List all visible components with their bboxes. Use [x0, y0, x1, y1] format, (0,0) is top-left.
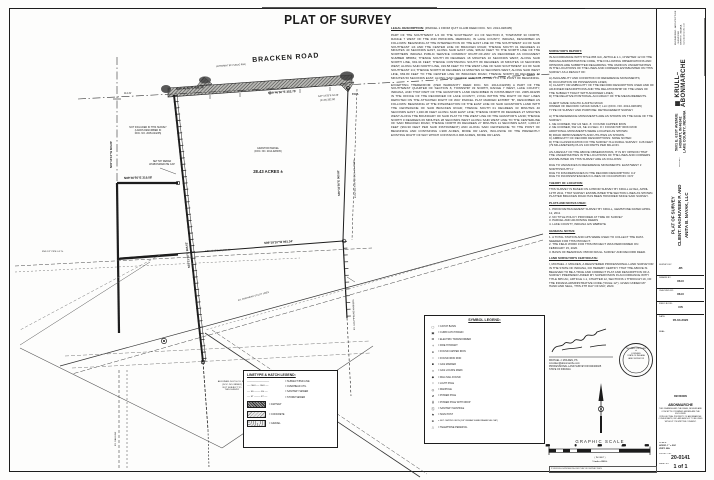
legend-label: = POWER POLE [438, 394, 456, 397]
legend-label: = CATCH BASIN [438, 325, 456, 328]
field-field-book: FIELD BOOK: CB [657, 302, 704, 315]
found-iron-rod-icon: ○ [428, 356, 438, 360]
report-client-info: CLIENT NAME: RAGHU & ANITA NAYAK OWNER O… [549, 102, 654, 113]
dim-quarter: 114.31' [124, 92, 132, 95]
legend-label: = TELEPHONE PEDESTAL [438, 426, 467, 429]
surveyor-seal-text: MICHAEL J. MOLDEN ★ LICENSED STATE OF IN… [621, 348, 651, 360]
legend-label: = CURB CATCH BASIN [438, 331, 463, 334]
drawing-info-fields: SURVEY BY: JB DRAWN BY: RLN CHECKED BY: … [657, 263, 704, 331]
project-label: PROJECT: [679, 157, 682, 167]
field-value: RLN [659, 292, 702, 296]
manhole-icon: ◎ [428, 388, 438, 392]
plat-sheet: PLAT OF SURVEY [0, 0, 714, 480]
report-opinion: AS A RESULT OF THE ABOVE OBSERVATIONS, I… [549, 151, 654, 162]
scale-ratio-label: 1 inch = 200 ft. [570, 461, 630, 464]
theory-heading: THEORY OF LOCATION: [549, 182, 654, 186]
label-east-stub: EX. GAS PIPELINE MARKERS [352, 299, 356, 330]
legend-label: = ASPHALT [269, 403, 282, 406]
legend-label: = GAS LOCATE MARK [438, 369, 463, 372]
gas-locate-mark-icon: × [428, 369, 438, 373]
sanitary-sewer-line-sample: ── SS ──── SS ── [247, 391, 285, 394]
linetype-legend: LINETYPE & HATCH LEGEND: ─────────────= … [243, 370, 338, 448]
field-drawn-by: DRAWN BY: RLN [657, 276, 704, 289]
legend-row: = CONCRETE [247, 410, 334, 420]
legal-paragraph: PART OF THE SOUTHWEST 1/4 OF THE SOUTHEA… [391, 34, 540, 81]
scale-vertical: VERT: N/A [657, 448, 704, 451]
legend-label: = SANITARY SEWER [285, 390, 308, 393]
legal-subheading: (PARCEL 1 FROM QUIT CLAIM DEED DOC. NO. … [425, 27, 512, 30]
plats-list: 1. PRIOR RETRACEMENT SURVEY BY KRULL, GE… [549, 208, 654, 226]
legend-label: = SIGN POST [438, 413, 453, 416]
storm-sewer-line-sample: ── ST ──── ST ── [247, 396, 285, 399]
light-pole-icon: ☼ [428, 381, 438, 385]
curb-catch-basin-icon: ▣ [428, 331, 438, 335]
notes-list: 1. A TOTAL STATION AND GPS WERE USED TO … [549, 236, 654, 254]
catch-basin-icon: ▢ [428, 325, 438, 329]
sheet-number-block: SHEET NO. 1 of 1 [657, 463, 704, 471]
gravel-hatch-swatch [247, 420, 266, 427]
telephone-pedestal-icon: △ [428, 425, 438, 429]
electric-transformer-icon: ⊠ [428, 337, 438, 341]
note-set-rebar: SET 5/8" REBAR W/ABONMARCHE CAP [144, 160, 180, 166]
certificate-text: I, MICHAEL J. MOLDEN, A REGISTERED PROFE… [549, 263, 654, 289]
graphic-scale-title: GRAPHIC SCALE [568, 439, 632, 444]
project-address-block: 5601 E. 61ST AVENUE HOBART, IN 46342 LAK… [657, 107, 704, 158]
symbol-legend-title: SYMBOL LEGEND: [428, 318, 541, 322]
mag-nail-icon: ◆ [428, 375, 438, 379]
revisions-label: REVISIONS [657, 392, 704, 401]
field-value: CB [659, 305, 702, 309]
dim-section-line: N00°13'10"W 663.80' [109, 141, 113, 168]
legend-label: = MANHOLE [438, 388, 452, 391]
seal-area: SEAL: [657, 330, 704, 393]
plats-heading: PLATS AND NOTES USED: [549, 202, 654, 206]
sheet-title-client: PLAT OF SURVEY CLIENT: RAGHUVEER P. AND … [671, 184, 691, 245]
dim-west-stub: N89°46'50"E 319.58' [124, 177, 152, 181]
label-existing-rw: EXISTING R/W PER DOC. NO. 885861 [354, 159, 357, 198]
gas-marker-icon: ■ [428, 362, 438, 366]
firm-disclaimer-block: ABONMARCHE THIS DRAWING AND THE IDEAS, D… [657, 401, 704, 443]
fire-hydrant-icon: + [428, 344, 438, 348]
note-excluded-lands: NOT INCLUDED IN THIS SURVEY (LANDS DESCR… [126, 126, 170, 135]
field-checked-by: CHECKED BY: RLN [657, 289, 704, 302]
concrete-hatch-swatch [247, 411, 266, 418]
label-gas-line: EX. GAS LINE [114, 431, 117, 446]
legend-label: = FOUND IRON ROD [438, 357, 461, 360]
firm-block: ▦ KRULL–ABONMARCHE ENGINEERING · ARCHITE… [657, 9, 704, 108]
surveyor-name-block: MICHAEL J. MOLDEN, PS mmolden@abonmarche… [549, 359, 617, 371]
surveyors-report: SURVEYOR'S REPORT: IN ACCORDANCE WITH TI… [549, 50, 654, 342]
report-uncertainties: DUE TO VARIANCES IN REFERENCE MONUMENTS:… [549, 164, 654, 179]
note-found-pipe: FND 1/2" PIPE 0.3' N. [42, 251, 84, 254]
notes-heading: GENERAL NOTES: [549, 230, 654, 234]
boundary-line-sample: ───────────── [247, 380, 285, 383]
legend-label: = GAS MARKER [438, 363, 456, 366]
legend-label: = LIGHT POLE [438, 382, 454, 385]
legend-label: = SANITARY MANHOLE [438, 407, 464, 410]
overhead-util-line-sample: ── OHU ── OHU ── [247, 385, 285, 388]
legend-label: = CONCRETE [269, 413, 284, 416]
legend-label: = FOUND CAPPED IRON [438, 350, 466, 353]
field-value: RLN [659, 279, 702, 283]
report-intro: IN ACCORDANCE WITH TITLE 865 IAC, ARTICL… [549, 56, 654, 74]
set-capped-iron-icon: ⊕ [428, 419, 438, 423]
legal-excepting-paragraph: EXCEPTING THEREFROM: (PER WARRANTY DEED … [391, 84, 540, 138]
project-address: 5601 E. 61ST AVENUE HOBART, IN 46342 LAK… [675, 111, 687, 154]
drawing-file-path: P:\2020\20-0141\DWG\20-0141 PLAT OF SURV… [549, 466, 657, 473]
legend-label: = SUBJECT BND LINE [285, 380, 310, 383]
scale-tick: 800 [645, 445, 649, 447]
field-value: 05.04.2020 [659, 318, 702, 322]
report-causes: A) AVAILABILITY AND CONDITION OF REFEREN… [549, 77, 654, 99]
monument-symbols [160, 87, 355, 364]
scale-tick: 0 [575, 445, 577, 447]
scale-tick: 400 [622, 445, 626, 447]
firm-name: ▦ KRULL–ABONMARCHE [674, 47, 687, 107]
legal-heading: LEGAL DESCRIPTION: [391, 27, 424, 30]
theory-text: THIS SURVEY IS BASED ON A PRIOR SURVEY B… [549, 188, 654, 199]
firm-disclaimer: THIS DRAWING AND THE IDEAS, DESIGNS AND … [657, 408, 704, 423]
report-heading: SURVEYOR'S REPORT: [549, 50, 654, 54]
legend-row: = GRAVEL [247, 419, 334, 429]
linetype-legend-title: LINETYPE & HATCH LEGEND: [247, 373, 334, 377]
power-pole-icon: ø [428, 394, 438, 398]
legend-label: = MAG NAIL FOUND [438, 376, 461, 379]
field-date: DATE: 05.04.2020 [657, 315, 704, 327]
scale-tick: 200 [546, 445, 550, 447]
legend-label: = SET CAPPED IRON (5/8" REBAR W/ABONMARC… [438, 420, 498, 423]
scale-units-label: ( IN FEET ) [570, 457, 630, 460]
legend-row: △= TELEPHONE PEDESTAL [428, 424, 541, 430]
legal-description: LEGAL DESCRIPTION: (PARCEL 1 FROM QUIT C… [391, 27, 540, 273]
graphic-scale-bar: 200 0 200 400 800 [546, 445, 650, 455]
point-of-beginning-label: P.O.B. [352, 93, 359, 96]
sign-post-icon: ⚑ [428, 413, 438, 417]
acreage-label: 28.43 ACRES ± [240, 169, 296, 174]
field-survey-by: SURVEY BY: JB [657, 263, 704, 276]
legend-label: = OVERHEAD UTIL [285, 385, 306, 388]
power-pole-drop-icon: ɸ [428, 400, 438, 404]
legend-label: = GRAVEL [269, 422, 281, 425]
legend-label: = POWER POLE WITH DROP [438, 401, 470, 404]
firm-mini-name: ABONMARCHE [657, 403, 704, 407]
certificate-heading: LAND SURVEYOR'S CERTIFICATE: [549, 257, 654, 261]
firm-contact: ENGINEERING · ARCHITECTURE · SURVEYING G… [675, 9, 686, 45]
legend-row: = ASPHALT [247, 400, 334, 410]
found-capped-iron-icon: ● [428, 350, 438, 354]
seal-label: SEAL: [657, 330, 704, 335]
project-number: 20-0141 [657, 455, 704, 461]
dim-east-line: S00°32'50"E 963.81' [336, 169, 341, 196]
north-arrow [598, 383, 603, 433]
scale-tick: 200 [598, 445, 602, 447]
note-grantor-parcel: GRANTOR PARCEL (DOC. NO. 2014-028435) [243, 147, 293, 153]
legend-label: = FIRE HYDRANT [438, 344, 458, 347]
symbol-legend: SYMBOL LEGEND: ▢= CATCH BASIN ▣= CURB CA… [424, 315, 545, 444]
report-monument-notes: A) THE REFERENCE MONUMENTS ARE AS SHOWN … [549, 115, 654, 148]
field-value: JB [659, 266, 702, 270]
sanitary-manhole-icon: Ⓢ [428, 406, 438, 411]
sheet-title-block: PLAT OF SURVEY CLIENT: RAGHUVEER P. AND … [657, 167, 704, 264]
legend-label: = ELECTRIC TRANSFORMER [438, 338, 471, 341]
asphalt-hatch-swatch [247, 401, 266, 408]
legend-label: = STORM SEWER [285, 396, 305, 399]
